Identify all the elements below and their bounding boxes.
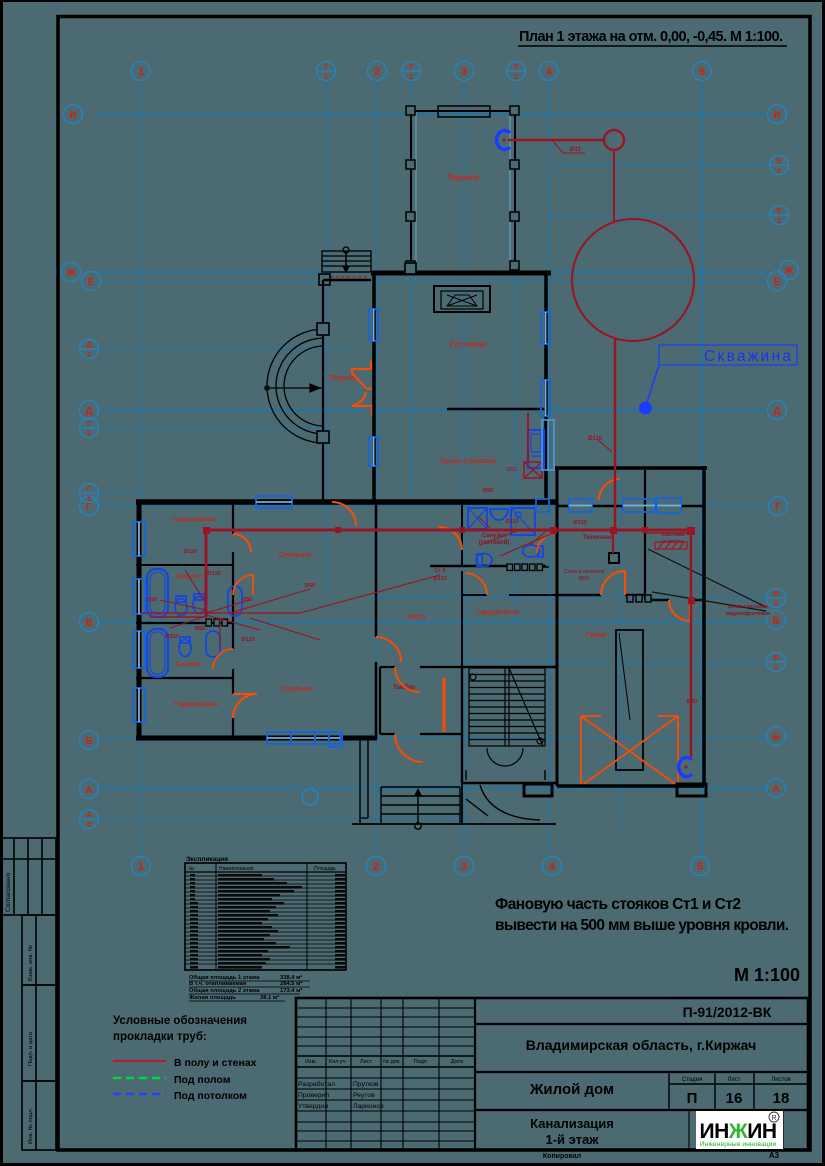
- svg-text:П: П: [687, 1090, 698, 1107]
- svg-text:Наименование: Наименование: [219, 866, 254, 872]
- svg-text:Ж: Ж: [783, 266, 794, 277]
- svg-text:Лист: Лист: [727, 1077, 740, 1083]
- svg-text:Кухня-столовая: Кухня-столовая: [441, 458, 496, 465]
- svg-text:Гостиная: Гостиная: [450, 340, 486, 349]
- svg-text:Ст 2: Ст 2: [434, 568, 445, 574]
- svg-text:1: 1: [324, 74, 328, 81]
- svg-text:Инженерные инновации: Инженерные инновации: [700, 1141, 777, 1148]
- svg-text:Условные обозначения: Условные обозначения: [113, 1015, 247, 1027]
- svg-text:Ø110: Ø110: [505, 519, 518, 525]
- svg-text:Ø110: Ø110: [433, 576, 446, 582]
- svg-text:Ø50: Ø50: [483, 488, 493, 494]
- svg-text:Общая площадь 1 этажа: Общая площадь 1 этажа: [189, 974, 260, 981]
- svg-text:Гараж: Гараж: [586, 632, 608, 639]
- svg-text:Д: Д: [85, 406, 92, 417]
- svg-text:Ø110: Ø110: [241, 637, 254, 643]
- svg-text:1: 1: [138, 861, 144, 873]
- svg-text:Проверил: Проверил: [298, 1092, 329, 1099]
- svg-text:П-91/2012-ВК: П-91/2012-ВК: [683, 1004, 772, 1020]
- svg-text:Площадь: Площадь: [314, 866, 336, 872]
- svg-text:2: 2: [374, 66, 380, 78]
- svg-text:Экспликация: Экспликация: [186, 856, 228, 863]
- svg-text:3: 3: [461, 66, 467, 78]
- svg-text:Взам. инв. №: Взам. инв. №: [28, 945, 34, 981]
- svg-text:водоподготовки: водоподготовки: [726, 611, 770, 617]
- svg-text:Слив в приямок: Слив в приямок: [564, 569, 605, 575]
- svg-text:Скважина: Скважина: [704, 348, 791, 365]
- svg-text:Б: Б: [85, 736, 92, 747]
- svg-text:Прутков: Прутков: [353, 1081, 379, 1088]
- svg-text:Санузел: Санузел: [176, 661, 203, 668]
- svg-text:Листов: Листов: [771, 1077, 791, 1083]
- svg-text:1: 1: [777, 218, 781, 225]
- svg-text:Под полом: Под полом: [174, 1074, 231, 1086]
- svg-text:1: 1: [774, 601, 778, 608]
- svg-text:И: И: [773, 110, 780, 121]
- svg-text:Ø50: Ø50: [579, 576, 589, 582]
- svg-text:Ø110: Ø110: [573, 520, 586, 526]
- svg-text:Ларионов: Ларионов: [353, 1103, 384, 1110]
- svg-text:Терраса: Терраса: [447, 173, 480, 182]
- svg-text:Ø110: Ø110: [165, 634, 178, 640]
- svg-text:Е: Е: [88, 277, 95, 288]
- svg-text:Фановую часть стояков Ст1 и Ст: Фановую часть стояков Ст1 и Ст2: [495, 896, 741, 913]
- svg-text:Под потолком: Под потолком: [174, 1090, 247, 1102]
- svg-text:Подп.: Подп.: [414, 1059, 429, 1065]
- svg-text:Ø50: Ø50: [305, 583, 315, 589]
- svg-text:В т.ч. отапливаемая: В т.ч. отапливаемая: [189, 981, 246, 987]
- svg-text:2: 2: [777, 168, 781, 175]
- svg-text:2: 2: [409, 64, 413, 71]
- svg-text:В: В: [85, 618, 92, 629]
- svg-text:План 1 этажа на отм. 0,00, -0,: План 1 этажа на отм. 0,00, -0,45. М 1:10…: [519, 29, 783, 45]
- svg-text:А3: А3: [769, 1151, 780, 1160]
- svg-text:В полу и стенах: В полу и стенах: [174, 1057, 257, 1069]
- svg-text:Б: Б: [773, 655, 778, 662]
- svg-text:Ø50: Ø50: [147, 597, 157, 603]
- svg-text:2: 2: [87, 431, 91, 438]
- svg-text:Общая площадь 2 этажа: Общая площадь 2 этажа: [189, 987, 260, 994]
- svg-text:Ø32: Ø32: [569, 147, 581, 153]
- svg-text:М 1:100: М 1:100: [734, 965, 800, 985]
- svg-text:А: А: [772, 784, 779, 795]
- svg-text:Г: Г: [775, 502, 781, 513]
- svg-text:Д: Д: [87, 342, 92, 349]
- svg-text:Ø50: Ø50: [242, 597, 252, 603]
- svg-text:1: 1: [138, 66, 144, 78]
- svg-text:Спальня: Спальня: [281, 684, 313, 693]
- svg-text:В: В: [773, 591, 778, 598]
- svg-text:Е: Е: [774, 277, 781, 288]
- svg-text:Г: Г: [87, 421, 91, 428]
- svg-text:Утвердил: Утвердил: [298, 1103, 328, 1110]
- svg-text:3: 3: [514, 64, 518, 71]
- svg-text:Согласовано: Согласовано: [5, 873, 12, 912]
- svg-text:Копировал: Копировал: [543, 1153, 581, 1160]
- svg-text:Владимирская область, г.Киржач: Владимирская область, г.Киржач: [526, 1037, 757, 1053]
- svg-text:Ø110: Ø110: [183, 549, 196, 555]
- svg-text:А: А: [85, 785, 92, 796]
- svg-text:Реутов: Реутов: [353, 1092, 375, 1099]
- svg-text:ИНЖИН: ИНЖИН: [699, 1120, 776, 1143]
- svg-text:И: И: [69, 110, 76, 121]
- svg-text:Жилая площадь: Жилая площадь: [188, 995, 236, 1001]
- svg-text:2: 2: [373, 861, 379, 873]
- svg-text:338.4 м²: 338.4 м²: [280, 974, 302, 981]
- svg-text:Кол.уч.: Кол.уч.: [329, 1059, 347, 1065]
- svg-text:А: А: [86, 812, 91, 819]
- svg-text:Е: Е: [777, 208, 782, 215]
- svg-text:Лист: Лист: [360, 1059, 372, 1065]
- svg-text:Б: Б: [772, 732, 779, 743]
- svg-text:1: 1: [774, 665, 778, 672]
- svg-text:Ø50: Ø50: [687, 699, 697, 705]
- svg-text:прокладки труб:: прокладки труб:: [113, 1031, 207, 1043]
- svg-text:Слив системы: Слив системы: [728, 604, 768, 610]
- svg-text:Подп. и дата: Подп. и дата: [28, 1031, 34, 1066]
- svg-text:Г: Г: [86, 502, 92, 513]
- svg-text:1: 1: [324, 64, 328, 71]
- svg-text:Ø50: Ø50: [195, 626, 205, 632]
- svg-text:Инв. № подл.: Инв. № подл.: [28, 1108, 34, 1144]
- svg-text:Д: Д: [773, 406, 780, 417]
- svg-text:Холл: Холл: [407, 612, 426, 621]
- svg-text:Спальня: Спальня: [279, 550, 311, 559]
- svg-text:Гардеробная: Гардеробная: [172, 515, 216, 523]
- svg-text:В: В: [772, 616, 779, 627]
- svg-text:R: R: [771, 1115, 776, 1122]
- svg-text:Ж: Ж: [65, 268, 76, 279]
- svg-text:вывести на 500 мм выше уровня: вывести на 500 мм выше уровня кровли.: [495, 917, 789, 934]
- svg-text:Стадия: Стадия: [682, 1077, 702, 1083]
- svg-text:Ø110: Ø110: [207, 571, 220, 577]
- svg-text:4: 4: [546, 66, 553, 78]
- svg-text:Е: Е: [777, 158, 782, 165]
- svg-text:Гардеробная: Гардеробная: [174, 700, 218, 708]
- svg-text:№ док.: № док.: [383, 1059, 401, 1065]
- svg-text:Жилой дом: Жилой дом: [529, 1081, 614, 1098]
- svg-text:5: 5: [699, 66, 705, 78]
- svg-text:Г: Г: [87, 486, 91, 493]
- svg-text:Топочная: Топочная: [583, 534, 614, 541]
- svg-text:Ø50: Ø50: [507, 467, 517, 473]
- svg-text:38.1 м²: 38.1 м²: [260, 994, 279, 1001]
- svg-text:Дата: Дата: [451, 1059, 464, 1065]
- svg-text:4: 4: [549, 861, 556, 873]
- svg-text:18: 18: [773, 1090, 790, 1107]
- svg-text:Ø110: Ø110: [588, 436, 603, 442]
- svg-text:Канализация: Канализация: [530, 1116, 614, 1131]
- svg-text:Разработал: Разработал: [298, 1080, 335, 1088]
- svg-text:1: 1: [514, 74, 518, 81]
- svg-text:1: 1: [87, 352, 91, 359]
- svg-text:Гардеробная: Гардеробная: [477, 608, 519, 616]
- svg-text:1: 1: [409, 74, 413, 81]
- svg-text:0: 0: [87, 822, 91, 829]
- svg-text:5: 5: [697, 861, 703, 873]
- svg-text:№: №: [189, 866, 194, 872]
- svg-text:16: 16: [726, 1090, 743, 1107]
- svg-text:3: 3: [461, 861, 467, 873]
- svg-text:173.4 м²: 173.4 м²: [280, 987, 302, 994]
- svg-text:1-й этаж: 1-й этаж: [546, 1132, 600, 1147]
- svg-text:Изм.: Изм.: [305, 1059, 317, 1065]
